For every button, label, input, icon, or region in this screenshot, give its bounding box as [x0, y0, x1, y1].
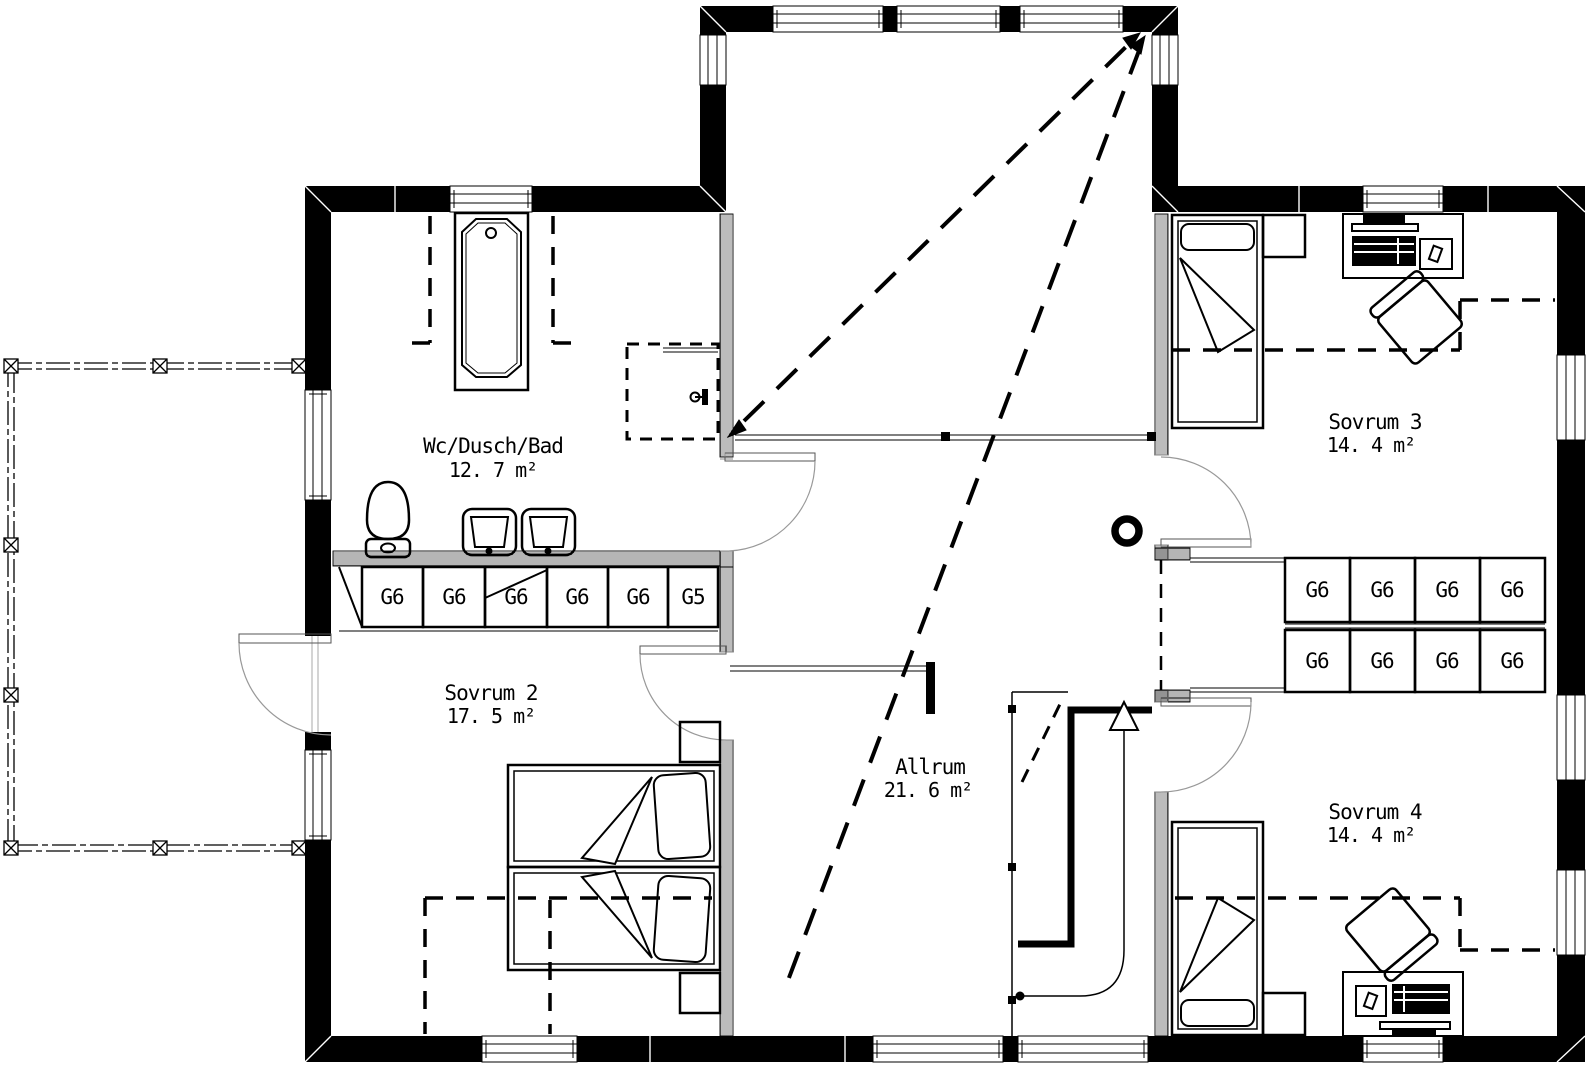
wardrobe-label: G5	[681, 585, 704, 609]
shower-area	[627, 344, 718, 439]
room-area-allrum: 21. 6 m²	[884, 778, 972, 802]
wardrobe-labels: G6 G6 G6 G6 G6 G5 G6 G6 G6 G6 G6 G6 G6 G…	[380, 578, 1524, 673]
wardrobe-label: G6	[1500, 578, 1524, 602]
wardrobe-label: G6	[1370, 578, 1394, 602]
ceiling-height-lines	[400, 216, 1555, 1034]
window	[1557, 355, 1585, 440]
floor-plan-drawing: Wc/Dusch/Bad 12. 7 m² Sovrum 2 17. 5 m² …	[0, 0, 1589, 1069]
window	[1018, 1036, 1148, 1062]
wardrobe-label: G6	[1305, 578, 1329, 602]
window	[482, 1036, 577, 1062]
wardrobe-label: G6	[1435, 649, 1459, 673]
stair-up-arrow-icon	[1110, 702, 1138, 730]
bathroom-door	[720, 453, 815, 551]
double-bed-icon	[508, 765, 720, 970]
wardrobe-label: G6	[1435, 578, 1459, 602]
wardrobe-label: G6	[1370, 649, 1394, 673]
window	[1152, 35, 1178, 85]
window	[1363, 1036, 1443, 1062]
window	[450, 186, 532, 212]
nightstand-icon	[680, 973, 720, 1013]
nightstand-icon	[1263, 993, 1305, 1035]
closet-nook	[1190, 558, 1545, 692]
balcony-post-icons	[4, 359, 306, 855]
desk-icon	[1343, 972, 1463, 1036]
nightstand-icon	[1263, 215, 1305, 257]
wall-joint-seams	[305, 6, 1585, 1062]
window	[1557, 695, 1585, 780]
room-label-bedroom4: Sovrum 4	[1328, 800, 1422, 824]
room-label-bathroom: Wc/Dusch/Bad	[423, 434, 563, 458]
bed-icon	[1172, 215, 1263, 428]
room-area-bedroom3: 14. 4 m²	[1327, 433, 1415, 457]
window	[873, 1036, 1003, 1062]
exterior-walls	[305, 6, 1585, 1062]
sink-icon	[522, 509, 575, 555]
toilet-icon	[366, 482, 410, 557]
bathroom-fixtures	[366, 213, 718, 557]
roof-slope-lines	[728, 33, 1145, 983]
room-label-bedroom3: Sovrum 3	[1328, 410, 1422, 434]
window	[1363, 186, 1443, 212]
room-area-bedroom2: 17. 5 m²	[447, 704, 535, 728]
chair-icon	[1344, 886, 1439, 982]
sink-icon	[463, 509, 516, 555]
staircase	[1008, 692, 1152, 1036]
balcony-door	[239, 634, 331, 735]
window	[1020, 6, 1123, 32]
doors	[239, 453, 1251, 792]
wardrobe-label: G6	[504, 585, 528, 609]
bathtub-icon	[455, 213, 528, 390]
room-label-allrum: Allrum	[895, 755, 965, 779]
chimney-flue-icon	[1115, 519, 1139, 543]
wardrobe-label: G6	[565, 585, 589, 609]
room-area-bedroom4: 14. 4 m²	[1327, 823, 1415, 847]
bedroom2-furniture	[508, 722, 720, 1013]
wardrobe-label: G6	[442, 585, 466, 609]
wardrobe-label: G6	[380, 585, 404, 609]
desk-icon	[1343, 214, 1463, 278]
nightstand-icon	[680, 722, 720, 762]
window	[897, 6, 1000, 32]
wardrobe-label: G6	[626, 585, 650, 609]
window	[305, 390, 331, 500]
window	[773, 6, 883, 32]
windows	[305, 6, 1585, 1062]
window	[700, 35, 726, 85]
room-label-bedroom2: Sovrum 2	[444, 681, 537, 705]
wardrobe-label: G6	[1500, 649, 1524, 673]
wardrobe-label: G6	[1305, 649, 1329, 673]
room-area-bathroom: 12. 7 m²	[449, 458, 537, 482]
chair-icon	[1368, 269, 1463, 365]
balcony	[4, 359, 306, 855]
window	[305, 750, 331, 840]
bedroom4-door	[1155, 698, 1251, 792]
bed-icon	[1172, 822, 1263, 1035]
stair-break-line	[1022, 700, 1062, 782]
bedroom4-furniture	[1172, 822, 1463, 1036]
bedroom3-furniture	[1172, 214, 1464, 428]
floor-plan-page: Wc/Dusch/Bad 12. 7 m² Sovrum 2 17. 5 m² …	[0, 0, 1589, 1069]
bedroom3-door	[1155, 455, 1251, 547]
window	[1557, 870, 1585, 955]
